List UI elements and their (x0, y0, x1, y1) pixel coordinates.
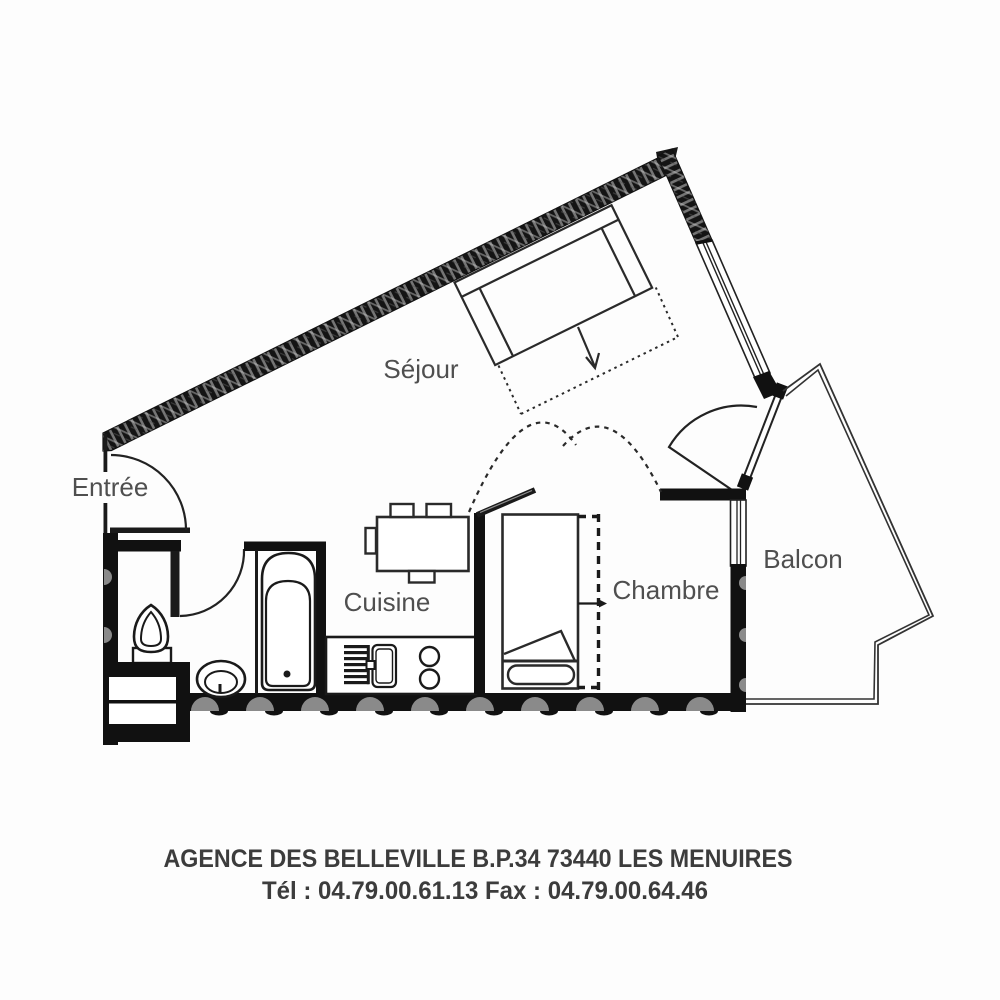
svg-text:Entrée: Entrée (72, 472, 149, 502)
svg-text:Chambre: Chambre (613, 575, 720, 605)
svg-text:AGENCE DES BELLEVILLE B.P.34 7: AGENCE DES BELLEVILLE B.P.34 73440 LES M… (164, 845, 793, 873)
svg-text:Balcon: Balcon (763, 544, 843, 574)
svg-text:Tél : 04.79.00.61.13 Fax : 04: Tél : 04.79.00.61.13 Fax : 04.79.00.64.4… (262, 877, 708, 905)
svg-text:Séjour: Séjour (383, 354, 458, 384)
svg-text:Cuisine: Cuisine (344, 587, 431, 617)
